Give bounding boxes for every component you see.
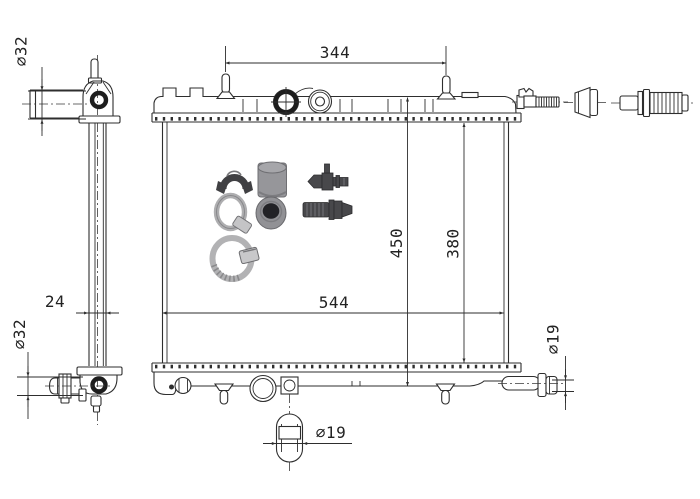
bottom-pin-right bbox=[437, 384, 455, 404]
rubber-grommet bbox=[256, 197, 286, 229]
dimension-19-outlet: ⌀19 bbox=[544, 324, 575, 410]
dim-label-344: 344 bbox=[320, 43, 350, 62]
side-bottom-tank bbox=[45, 367, 122, 412]
dimension-32-bottom: ⌀32 bbox=[10, 319, 83, 419]
ribbed-connector bbox=[611, 90, 695, 117]
tapered-plug bbox=[564, 88, 606, 118]
bottom-pin-left bbox=[215, 384, 233, 404]
dimension-544: 544 bbox=[163, 293, 504, 313]
accessory-kit bbox=[213, 162, 353, 279]
side-filler-ring bbox=[92, 93, 106, 107]
dim-label-32-bottom: ⌀32 bbox=[10, 319, 29, 349]
dim-label-32-top: ⌀32 bbox=[12, 36, 31, 66]
top-pin-right bbox=[438, 76, 456, 99]
spring-clip bbox=[216, 171, 253, 194]
loose-parts bbox=[512, 88, 695, 118]
adapter-large bbox=[303, 200, 352, 220]
hose-clamp-large bbox=[213, 238, 260, 279]
dimension-450: 450 bbox=[387, 98, 408, 387]
rubber-cap bbox=[258, 162, 287, 197]
drain-cock bbox=[169, 378, 191, 394]
dimension-380: 380 bbox=[444, 123, 465, 363]
side-bottom-flange bbox=[77, 367, 122, 375]
hose-clamp-small bbox=[217, 196, 253, 234]
dimension-24: 24 bbox=[45, 292, 119, 313]
right-outlet bbox=[498, 374, 565, 397]
technical-drawing-canvas: 344 450 380 544 24 ⌀32 ⌀32 ⌀ bbox=[0, 0, 700, 499]
sensor-fitting bbox=[281, 377, 298, 394]
side-view bbox=[22, 55, 122, 425]
bottom-boss bbox=[250, 376, 276, 402]
lower-drain-plug bbox=[277, 394, 303, 472]
dimension-32-top: ⌀32 bbox=[12, 36, 87, 136]
top-boss-inner bbox=[316, 97, 325, 106]
side-drain-stub bbox=[91, 396, 101, 406]
dim-label-544: 544 bbox=[319, 293, 349, 312]
dim-label-450: 450 bbox=[387, 228, 406, 258]
dim-label-24: 24 bbox=[45, 292, 65, 311]
top-tank bbox=[154, 74, 516, 117]
bottom-tank bbox=[154, 372, 565, 472]
dim-label-19-drain: ⌀19 bbox=[316, 423, 346, 442]
side-top-flange bbox=[79, 116, 120, 123]
bottom-crimp-strip bbox=[152, 363, 521, 372]
dim-label-380: 380 bbox=[444, 228, 463, 258]
top-crimp-strip bbox=[152, 113, 521, 122]
dim-label-19-outlet: ⌀19 bbox=[544, 324, 563, 354]
side-bottom-ring bbox=[93, 379, 106, 392]
side-inlet-pipe bbox=[22, 90, 88, 118]
top-tank-ticks bbox=[243, 99, 433, 112]
front-view bbox=[152, 74, 565, 472]
threaded-stud bbox=[512, 89, 568, 109]
top-pin-left bbox=[217, 74, 235, 99]
top-tab-right bbox=[462, 93, 478, 98]
adapter-small bbox=[308, 164, 348, 190]
radiator-drawing: 344 450 380 544 24 ⌀32 ⌀32 ⌀ bbox=[0, 0, 700, 499]
dimension-344: 344 bbox=[226, 43, 447, 75]
